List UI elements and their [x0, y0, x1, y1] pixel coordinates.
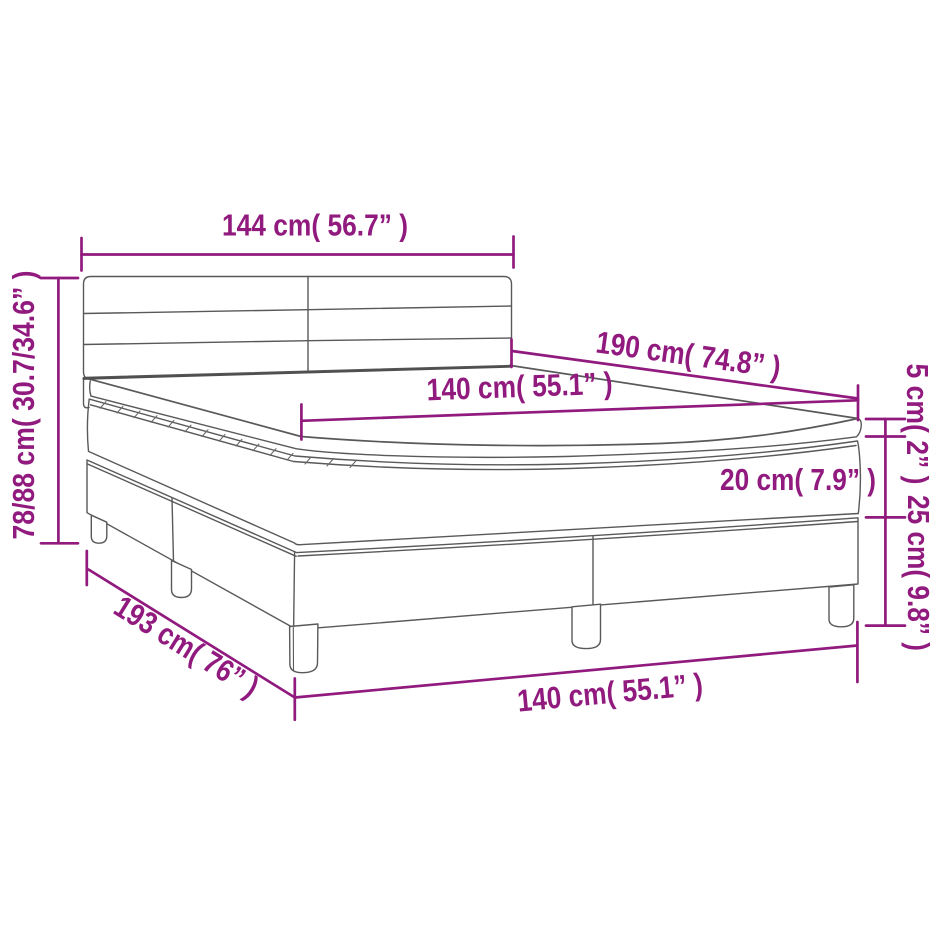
svg-text:25 cm( 9.8” ): 25 cm( 9.8” )	[901, 495, 936, 651]
svg-text:140 cm( 55.1” ): 140 cm( 55.1” )	[426, 366, 613, 408]
svg-text:5 cm( 2” ): 5 cm( 2” )	[900, 364, 935, 485]
svg-text:144 cm( 56.7” ): 144 cm( 56.7” )	[222, 208, 408, 243]
svg-text:78/88 cm( 30.7/34.6” ): 78/88 cm( 30.7/34.6” )	[6, 271, 41, 540]
svg-text:20 cm( 7.9” ): 20 cm( 7.9” )	[720, 462, 876, 497]
